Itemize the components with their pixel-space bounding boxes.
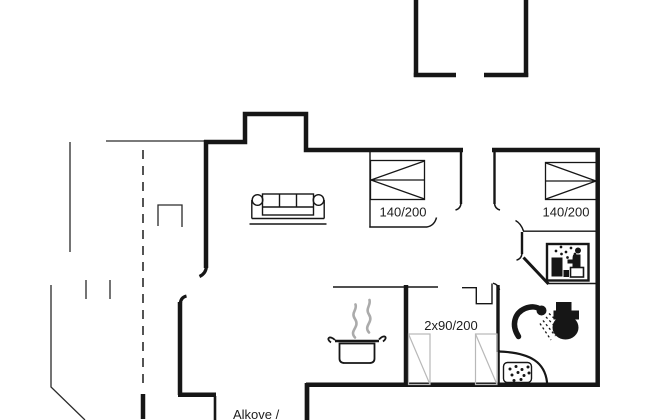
annex-walls: [414, 0, 528, 77]
washbasin-icon: [499, 350, 548, 386]
bunk-beds-icon: 2x90/200: [409, 318, 498, 385]
bed-size-label: 140/200: [380, 205, 427, 220]
washing-machine-icon: [547, 244, 589, 281]
step-marker: [158, 205, 182, 227]
steam-icon: [353, 300, 370, 338]
floor-plan: 140/200 140/200 2x90/200: [0, 0, 650, 420]
cooking-pot-icon: [328, 300, 385, 363]
bunk-size-label: 2x90/200: [424, 318, 478, 333]
double-bed-icon-right: 140/200: [543, 163, 597, 220]
sofa-icon: [250, 194, 327, 224]
door-swing-icon: [516, 221, 524, 232]
door-swing-icon: [493, 283, 500, 290]
toilet-icon: [553, 302, 580, 340]
angled-wall: [524, 258, 549, 285]
bathroom: [499, 302, 579, 386]
door-swing-icon: [427, 218, 437, 228]
double-bed-icon-left: 140/200: [371, 161, 427, 220]
alcove-label: Alkove /: [233, 407, 280, 420]
wardrobe-niche: [462, 284, 492, 304]
floor-plan-canvas: 140/200 140/200 2x90/200: [0, 0, 650, 420]
bed-size-label: 140/200: [543, 205, 590, 220]
entrance-door-swing: [200, 266, 207, 277]
